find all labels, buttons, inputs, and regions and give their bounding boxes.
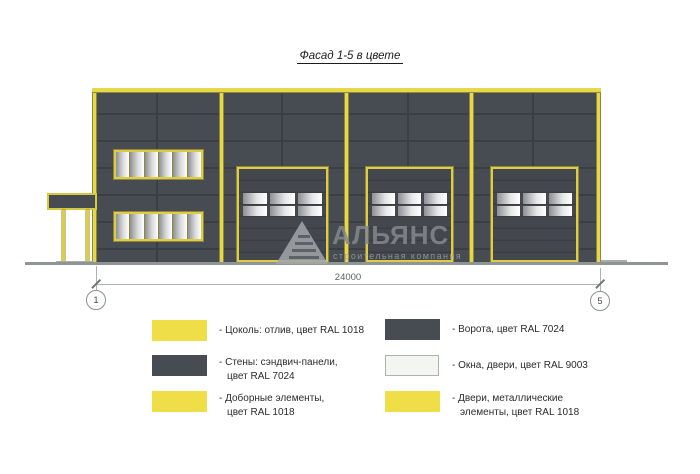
right-apron [601,260,627,262]
gate-window-pane [549,193,572,204]
legend-label-accessories: - Доборные элементы, цвет RAL 1018 [219,392,324,419]
drawing-title-text: Фасад 1-5 в цвете [297,50,404,64]
sectional-gate-3 [491,167,578,262]
axis-marker-5: 5 [590,291,610,311]
window-pane [130,152,143,177]
legend-label-line: - Доборные элементы, [219,392,324,406]
alliance-logo-triangle-icon [276,221,328,264]
legend-label-line: - Окна, двери, цвет RAL 9003 [452,359,588,373]
gate-window-pane [298,193,322,204]
legend-label-line: цвет RAL 7024 [219,370,338,384]
gate-window-band [372,193,447,216]
gate-window-pane [372,193,395,204]
legend-label-line: цвет RAL 1018 [219,406,324,420]
legend-label-plinth: - Цоколь: отлив, цвет RAL 1018 [219,324,364,338]
window-pane [116,214,129,239]
gate-window-pane [424,206,447,217]
parapet-flashing [92,88,601,93]
gate-window-pane [270,206,294,217]
canopy-post [86,210,89,262]
drawing-title: Фасад 1-5 в цвете [0,50,700,64]
window-pane [145,152,158,177]
legend-label-line: - Двери, металлические [452,392,579,406]
legend-swatch-windows-doors [385,355,439,376]
legend-swatch-metal-doors [385,391,440,412]
legend-swatch-plinth [152,320,207,341]
gate-window-pane [497,193,520,204]
window-pane [145,214,158,239]
legend-label-line: - Ворота, цвет RAL 7024 [452,323,564,337]
legend-label-line: элементы, цвет RAL 1018 [452,406,579,420]
legend-label-windows-doors: - Окна, двери, цвет RAL 9003 [452,359,588,373]
gate-window-pane [243,206,267,217]
corner-trim-right [596,88,601,262]
gate-window-pane [298,206,322,217]
dimension-line [96,284,601,285]
legend-label-walls: - Стены: сэндвич-панели, цвет RAL 7024 [219,356,338,383]
gate-window-pane [270,193,294,204]
facade-drawing-sheet: Фасад 1-5 в цвете [0,0,700,474]
legend-swatch-accessories [152,391,207,412]
dimension-extension-line [96,266,97,292]
window-pane [130,214,143,239]
window-pane [159,152,172,177]
window-pane [188,152,201,177]
legend-label-gates: - Ворота, цвет RAL 7024 [452,323,564,337]
entrance-canopy-roof [47,193,97,210]
legend-swatch-gates [385,319,440,340]
gate-window-pane [398,206,421,217]
window-pane [173,214,186,239]
gate-window-pane [398,193,421,204]
canopy-post [62,210,65,262]
legend-swatch-walls [152,355,207,376]
gate-window-pane [523,193,546,204]
window-pane [188,214,201,239]
gate-window-pane [424,193,447,204]
watermark-company-subtitle: строительная компания [333,251,462,261]
company-watermark: АЛЬЯНС строительная компания [276,220,476,265]
legend-label-line: - Цоколь: отлив, цвет RAL 1018 [219,324,364,338]
window-pane [159,214,172,239]
dimension-value: 24000 [318,272,378,283]
gate-window-band [497,193,572,216]
ribbon-window-lower [114,212,203,241]
window-pane [116,152,129,177]
gate-window-pane [243,193,267,204]
legend-label-metal-doors: - Двери, металлические элементы, цвет RA… [452,392,579,419]
gate-window-pane [497,206,520,217]
gate-window-pane [549,206,572,217]
ribbon-window-upper [114,150,203,179]
watermark-company-name: АЛЬЯНС [332,220,449,251]
gate-window-pane [372,206,395,217]
window-pane [173,152,186,177]
legend-label-line: - Стены: сэндвич-панели, [219,356,338,370]
corner-trim-left [92,88,97,262]
column-trim [219,88,224,262]
gate-window-band [243,193,322,216]
axis-marker-1: 1 [86,290,106,310]
gate-window-pane [523,206,546,217]
